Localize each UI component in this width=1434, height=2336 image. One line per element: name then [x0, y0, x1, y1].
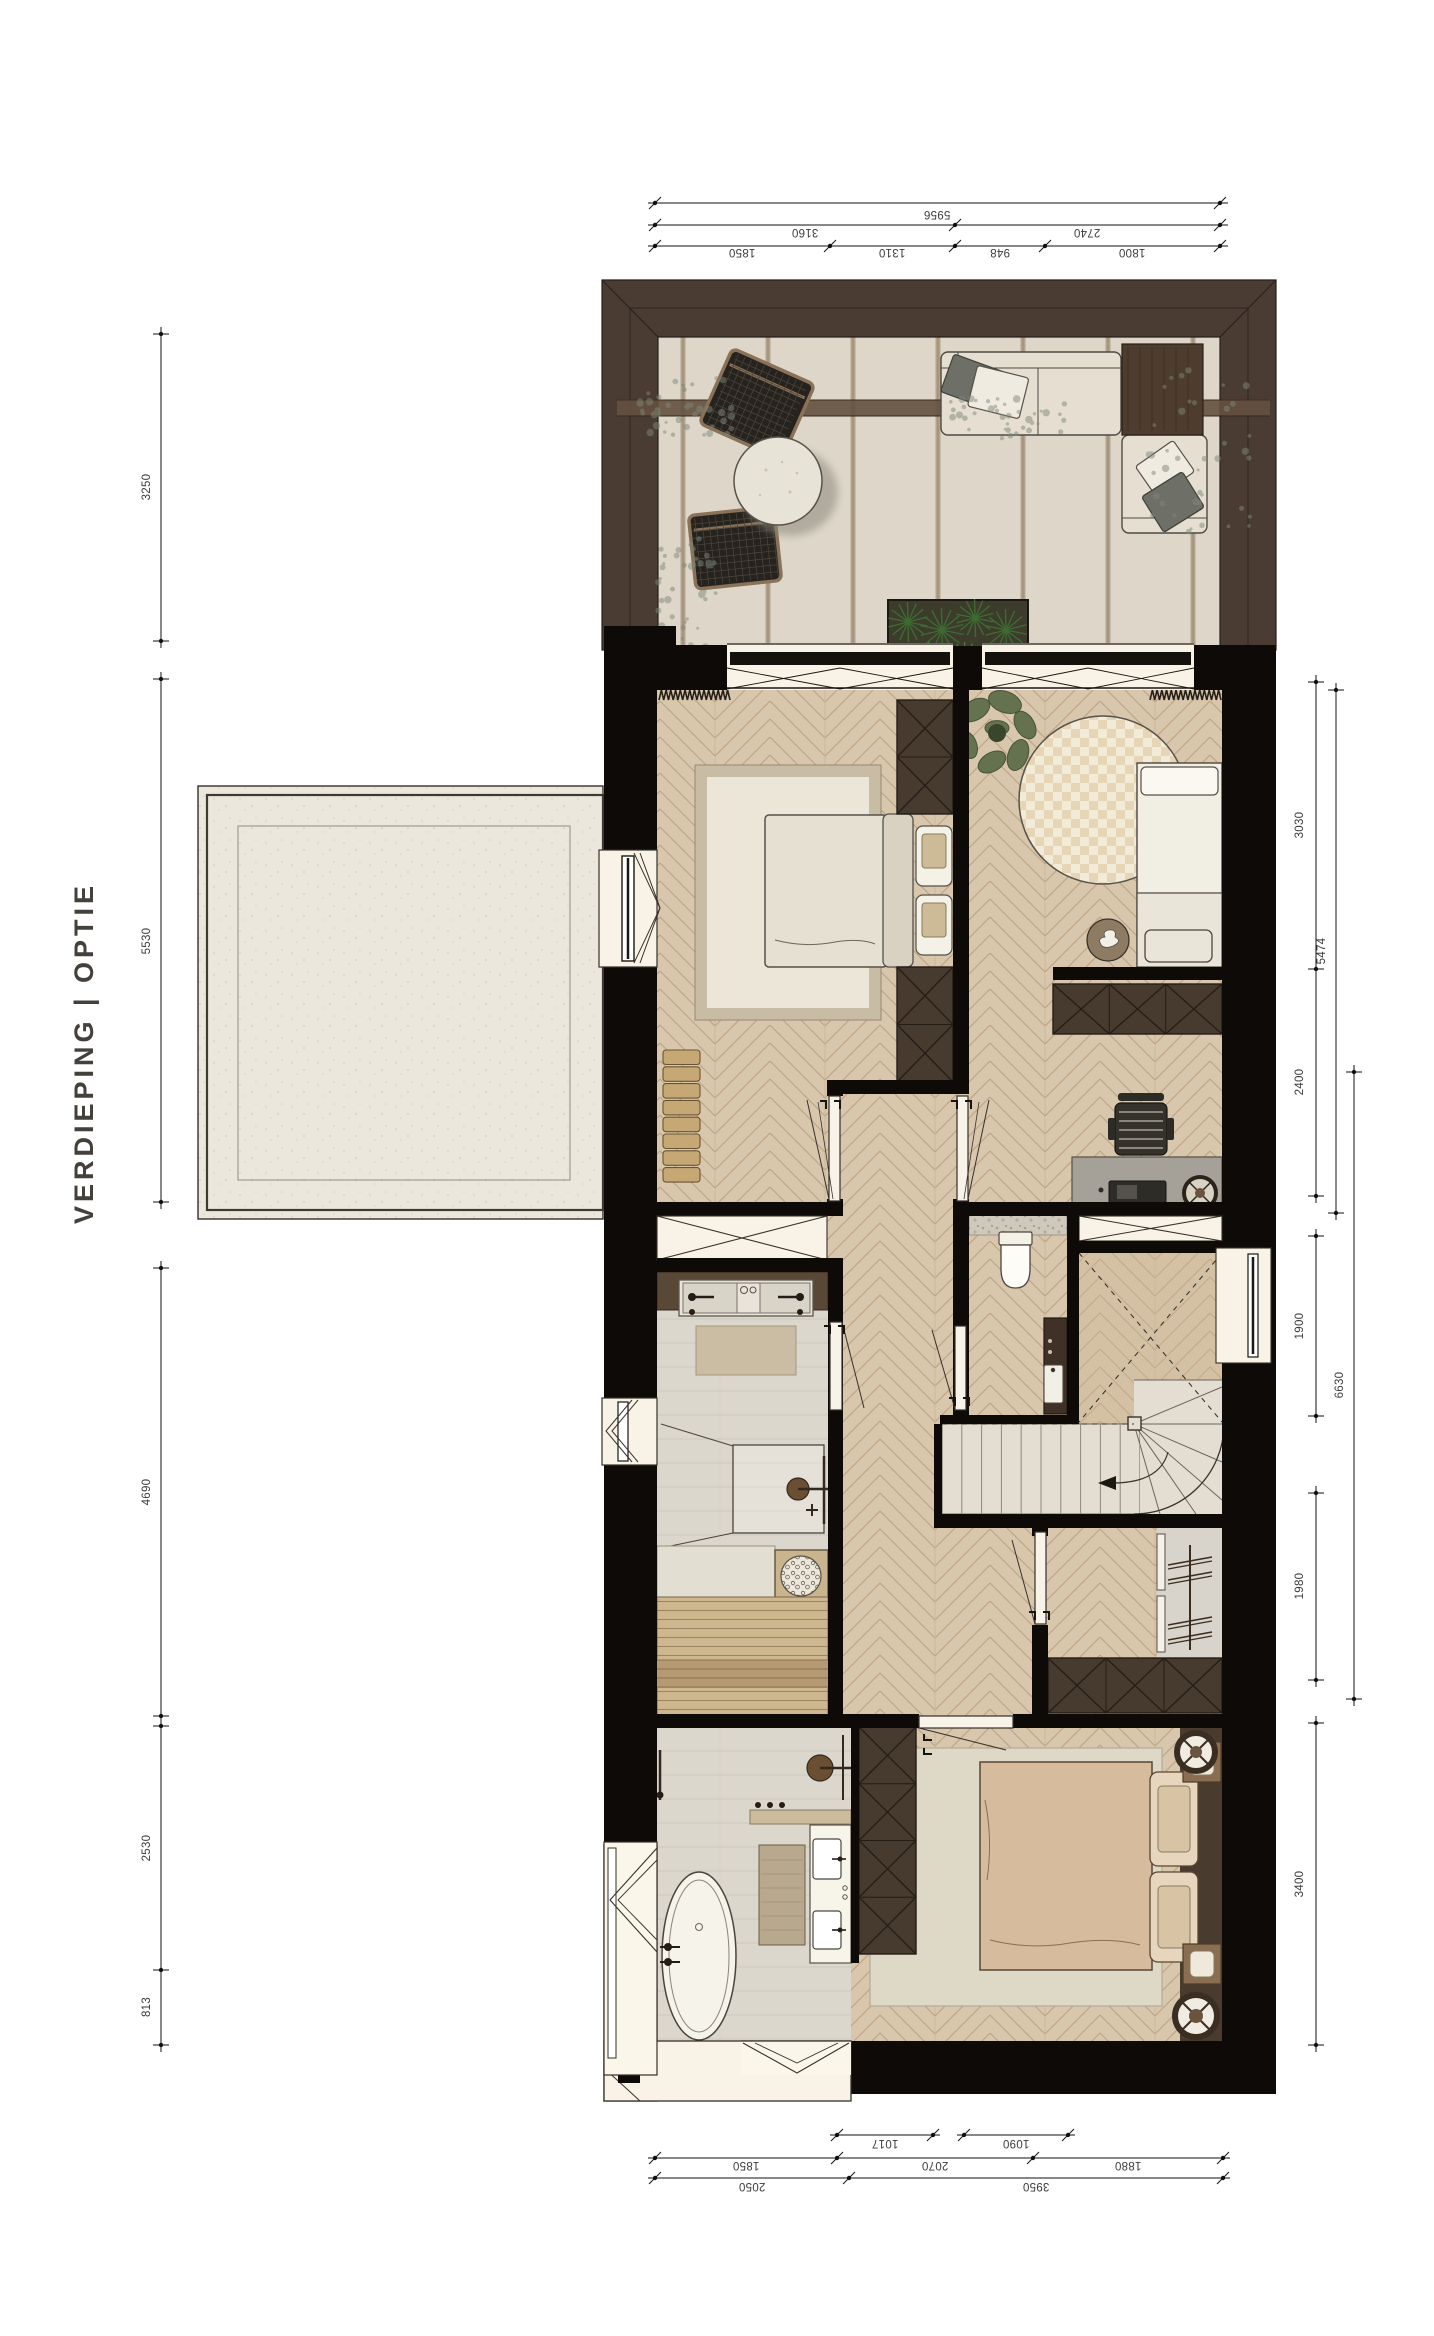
svg-text:813: 813 — [141, 1997, 153, 2017]
svg-text:1017: 1017 — [872, 2137, 899, 2149]
svg-text:1900: 1900 — [1294, 1313, 1306, 1340]
svg-text:2530: 2530 — [141, 1835, 153, 1862]
svg-text:1850: 1850 — [729, 246, 756, 258]
svg-text:5530: 5530 — [141, 928, 153, 955]
svg-text:1850: 1850 — [733, 2159, 760, 2171]
svg-text:5474: 5474 — [1316, 937, 1328, 964]
svg-text:3160: 3160 — [792, 226, 819, 238]
svg-text:1980: 1980 — [1294, 1573, 1306, 1600]
svg-text:2400: 2400 — [1294, 1069, 1306, 1096]
svg-text:1880: 1880 — [1115, 2159, 1142, 2171]
svg-text:2050: 2050 — [739, 2180, 766, 2192]
svg-text:948: 948 — [990, 246, 1010, 258]
svg-text:1310: 1310 — [879, 246, 906, 258]
svg-text:3400: 3400 — [1294, 1871, 1306, 1898]
svg-text:1090: 1090 — [1003, 2137, 1030, 2149]
svg-text:VERDIEPING | OPTIE: VERDIEPING | OPTIE — [69, 882, 99, 1224]
svg-text:6630: 6630 — [1334, 1372, 1346, 1399]
svg-text:5956: 5956 — [924, 208, 951, 220]
svg-text:2740: 2740 — [1074, 226, 1101, 238]
svg-text:1800: 1800 — [1119, 246, 1146, 258]
svg-text:3030: 3030 — [1294, 812, 1306, 839]
svg-text:3250: 3250 — [141, 474, 153, 501]
svg-text:4690: 4690 — [141, 1479, 153, 1506]
svg-text:2070: 2070 — [922, 2159, 949, 2171]
svg-text:3950: 3950 — [1023, 2180, 1050, 2192]
